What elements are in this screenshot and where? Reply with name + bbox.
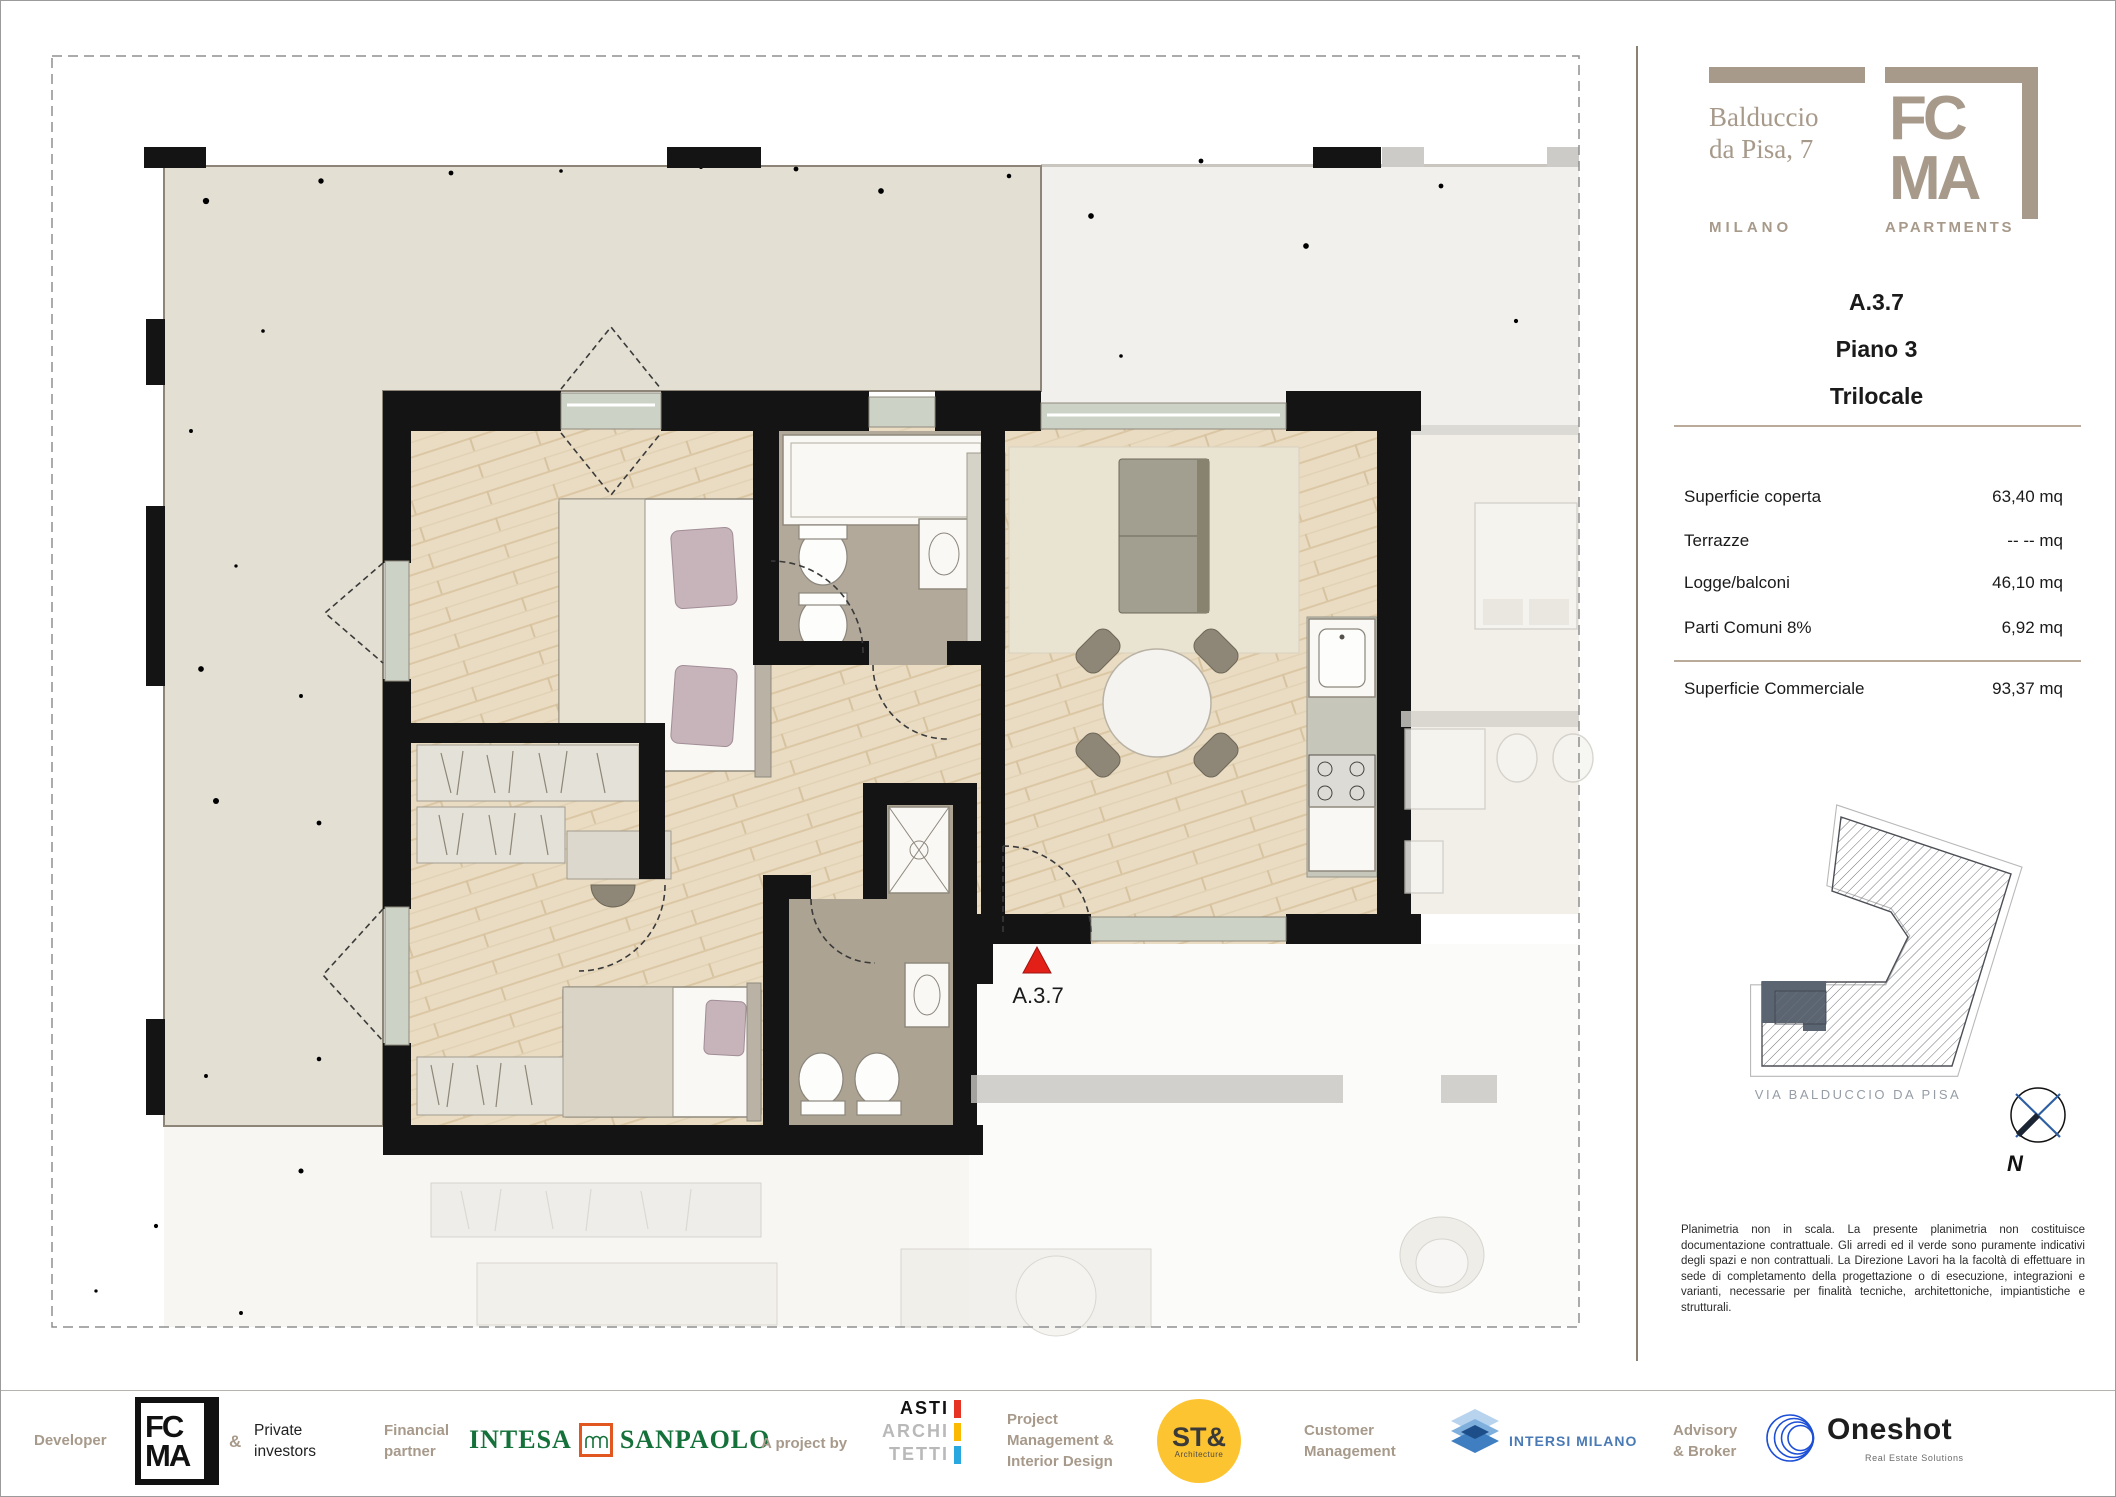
table-row: Superficie coperta 63,40 mq [1684, 487, 2063, 507]
footer-developer-label: Developer [34, 1430, 107, 1451]
fcma-ma: MA [1889, 149, 1977, 209]
compass-icon: N [2007, 1088, 2065, 1176]
table-row: Parti Comuni 8% 6,92 mq [1684, 618, 2063, 638]
table-total-row: Superficie Commerciale 93,37 mq [1684, 679, 2063, 699]
oneshot-sub-label: Real Estate Solutions [1865, 1453, 1964, 1463]
divider-bottom [1674, 660, 2081, 662]
fcma-footer-fc: FC [145, 1412, 204, 1441]
advisory-line2: & Broker [1673, 1441, 1737, 1462]
footer-financial-label: Financial partner [384, 1420, 449, 1462]
financial-line2: partner [384, 1441, 449, 1462]
asti-yellow-bar [954, 1423, 961, 1441]
footer-pm-label: Project Management & Interior Design [1007, 1409, 1114, 1472]
asti-line: ASTI [834, 1399, 961, 1418]
asti-architetti-logo: ASTI ARCHI TETTI [834, 1399, 961, 1464]
row-value: 46,10 mq [1992, 573, 2063, 593]
oneshot-label: Oneshot [1827, 1413, 1952, 1447]
site-street-label: VIA BALDUCCIO DA PISA [1755, 1087, 1961, 1102]
divider-top [1674, 425, 2081, 427]
st-logo-text: ST& [1172, 1424, 1226, 1450]
fcma-frame-top [1885, 67, 2038, 83]
panel-divider [1636, 46, 1638, 1361]
private-line2: investors [254, 1441, 316, 1462]
intesa-sanpaolo-logo: INTESA SANPAOLO [469, 1423, 770, 1457]
kitchen-unit [1307, 617, 1377, 877]
disclaimer-text: Planimetria non in scala. La presente pl… [1681, 1223, 2085, 1316]
footer-advisory-label: Advisory & Broker [1673, 1420, 1737, 1462]
unit-code: A.3.7 [1679, 289, 2074, 316]
row-value: 63,40 mq [1992, 487, 2063, 507]
row-value: -- -- mq [2007, 531, 2063, 551]
asti-red-bar [954, 1400, 961, 1418]
row-label: Parti Comuni 8% [1684, 618, 1812, 638]
asti-blue-bar [954, 1446, 961, 1464]
table-row: Terrazze -- -- mq [1684, 531, 2063, 551]
fcma-footer-logo: FC MA [135, 1397, 219, 1485]
fcma-logo: FC MA [1885, 67, 2038, 225]
brand-street-line2: da Pisa, 7 [1709, 133, 1818, 165]
st-architecture-logo: ST& Architecture [1157, 1399, 1241, 1483]
financial-line1: Financial [384, 1420, 449, 1441]
customer-line2: Management [1304, 1441, 1396, 1462]
brand-city: MILANO [1709, 219, 1792, 236]
fcma-frame-right [2022, 67, 2038, 219]
total-value: 93,37 mq [1992, 679, 2063, 699]
row-label: Terrazze [1684, 531, 1749, 551]
unit-floor: Piano 3 [1679, 336, 2074, 363]
brand-street-bar [1709, 67, 1865, 83]
private-line1: Private [254, 1420, 316, 1441]
advisory-line1: Advisory [1673, 1420, 1737, 1441]
oneshot-rings-icon [1765, 1409, 1825, 1467]
asti-word-2: ARCHI [882, 1421, 949, 1442]
footer-customer-label: Customer Management [1304, 1420, 1396, 1462]
row-label: Logge/balconi [1684, 573, 1790, 593]
footer-private-investors: Private investors [254, 1420, 316, 1462]
sanpaolo-word: SANPAOLO [620, 1425, 771, 1455]
total-label: Superficie Commerciale [1684, 679, 1864, 699]
asti-word-3: TETTI [889, 1444, 949, 1465]
row-label: Superficie coperta [1684, 487, 1821, 507]
site-building-footprint [1762, 817, 2011, 1066]
asti-word-1: ASTI [900, 1398, 949, 1419]
st-logo-sub: Architecture [1175, 1450, 1224, 1459]
intesa-word: INTESA [469, 1425, 572, 1455]
pm-line3: Interior Design [1007, 1451, 1114, 1472]
pm-line2: Management & [1007, 1430, 1114, 1451]
unit-marker-label: A.3.7 [1012, 983, 1063, 1008]
customer-line1: Customer [1304, 1420, 1396, 1441]
site-map: VIA BALDUCCIO DA PISA N [1701, 791, 2116, 1181]
brochure-page: A.3.7 Balduccio da Pisa, 7 MILANO FC MA … [0, 0, 2116, 1497]
brand-street-name: Balduccio da Pisa, 7 [1709, 101, 1818, 165]
fcma-letters: FC MA [1889, 89, 1977, 209]
fcma-footer-ma: MA [145, 1441, 204, 1470]
footer-ampersand: & [229, 1431, 241, 1452]
intersi-layers-icon [1447, 1407, 1503, 1463]
compass-north-label: N [2007, 1151, 2024, 1176]
unit-title-block: A.3.7 Piano 3 Trilocale [1679, 289, 2074, 410]
pm-line1: Project [1007, 1409, 1114, 1430]
brand-word: APARTMENTS [1885, 219, 2014, 236]
row-value: 6,92 mq [2002, 618, 2063, 638]
intersi-milano-label: INTERSI MILANO [1509, 1433, 1637, 1449]
brand-street-line1: Balduccio [1709, 101, 1818, 133]
footer-divider [1, 1390, 2116, 1391]
fcma-fc: FC [1889, 89, 1977, 149]
table-row: Logge/balconi 46,10 mq [1684, 573, 2063, 593]
asti-line: TETTI [834, 1445, 961, 1464]
asti-line: ARCHI [834, 1422, 961, 1441]
intesa-arch-icon [579, 1423, 613, 1457]
unit-type: Trilocale [1679, 383, 2074, 410]
